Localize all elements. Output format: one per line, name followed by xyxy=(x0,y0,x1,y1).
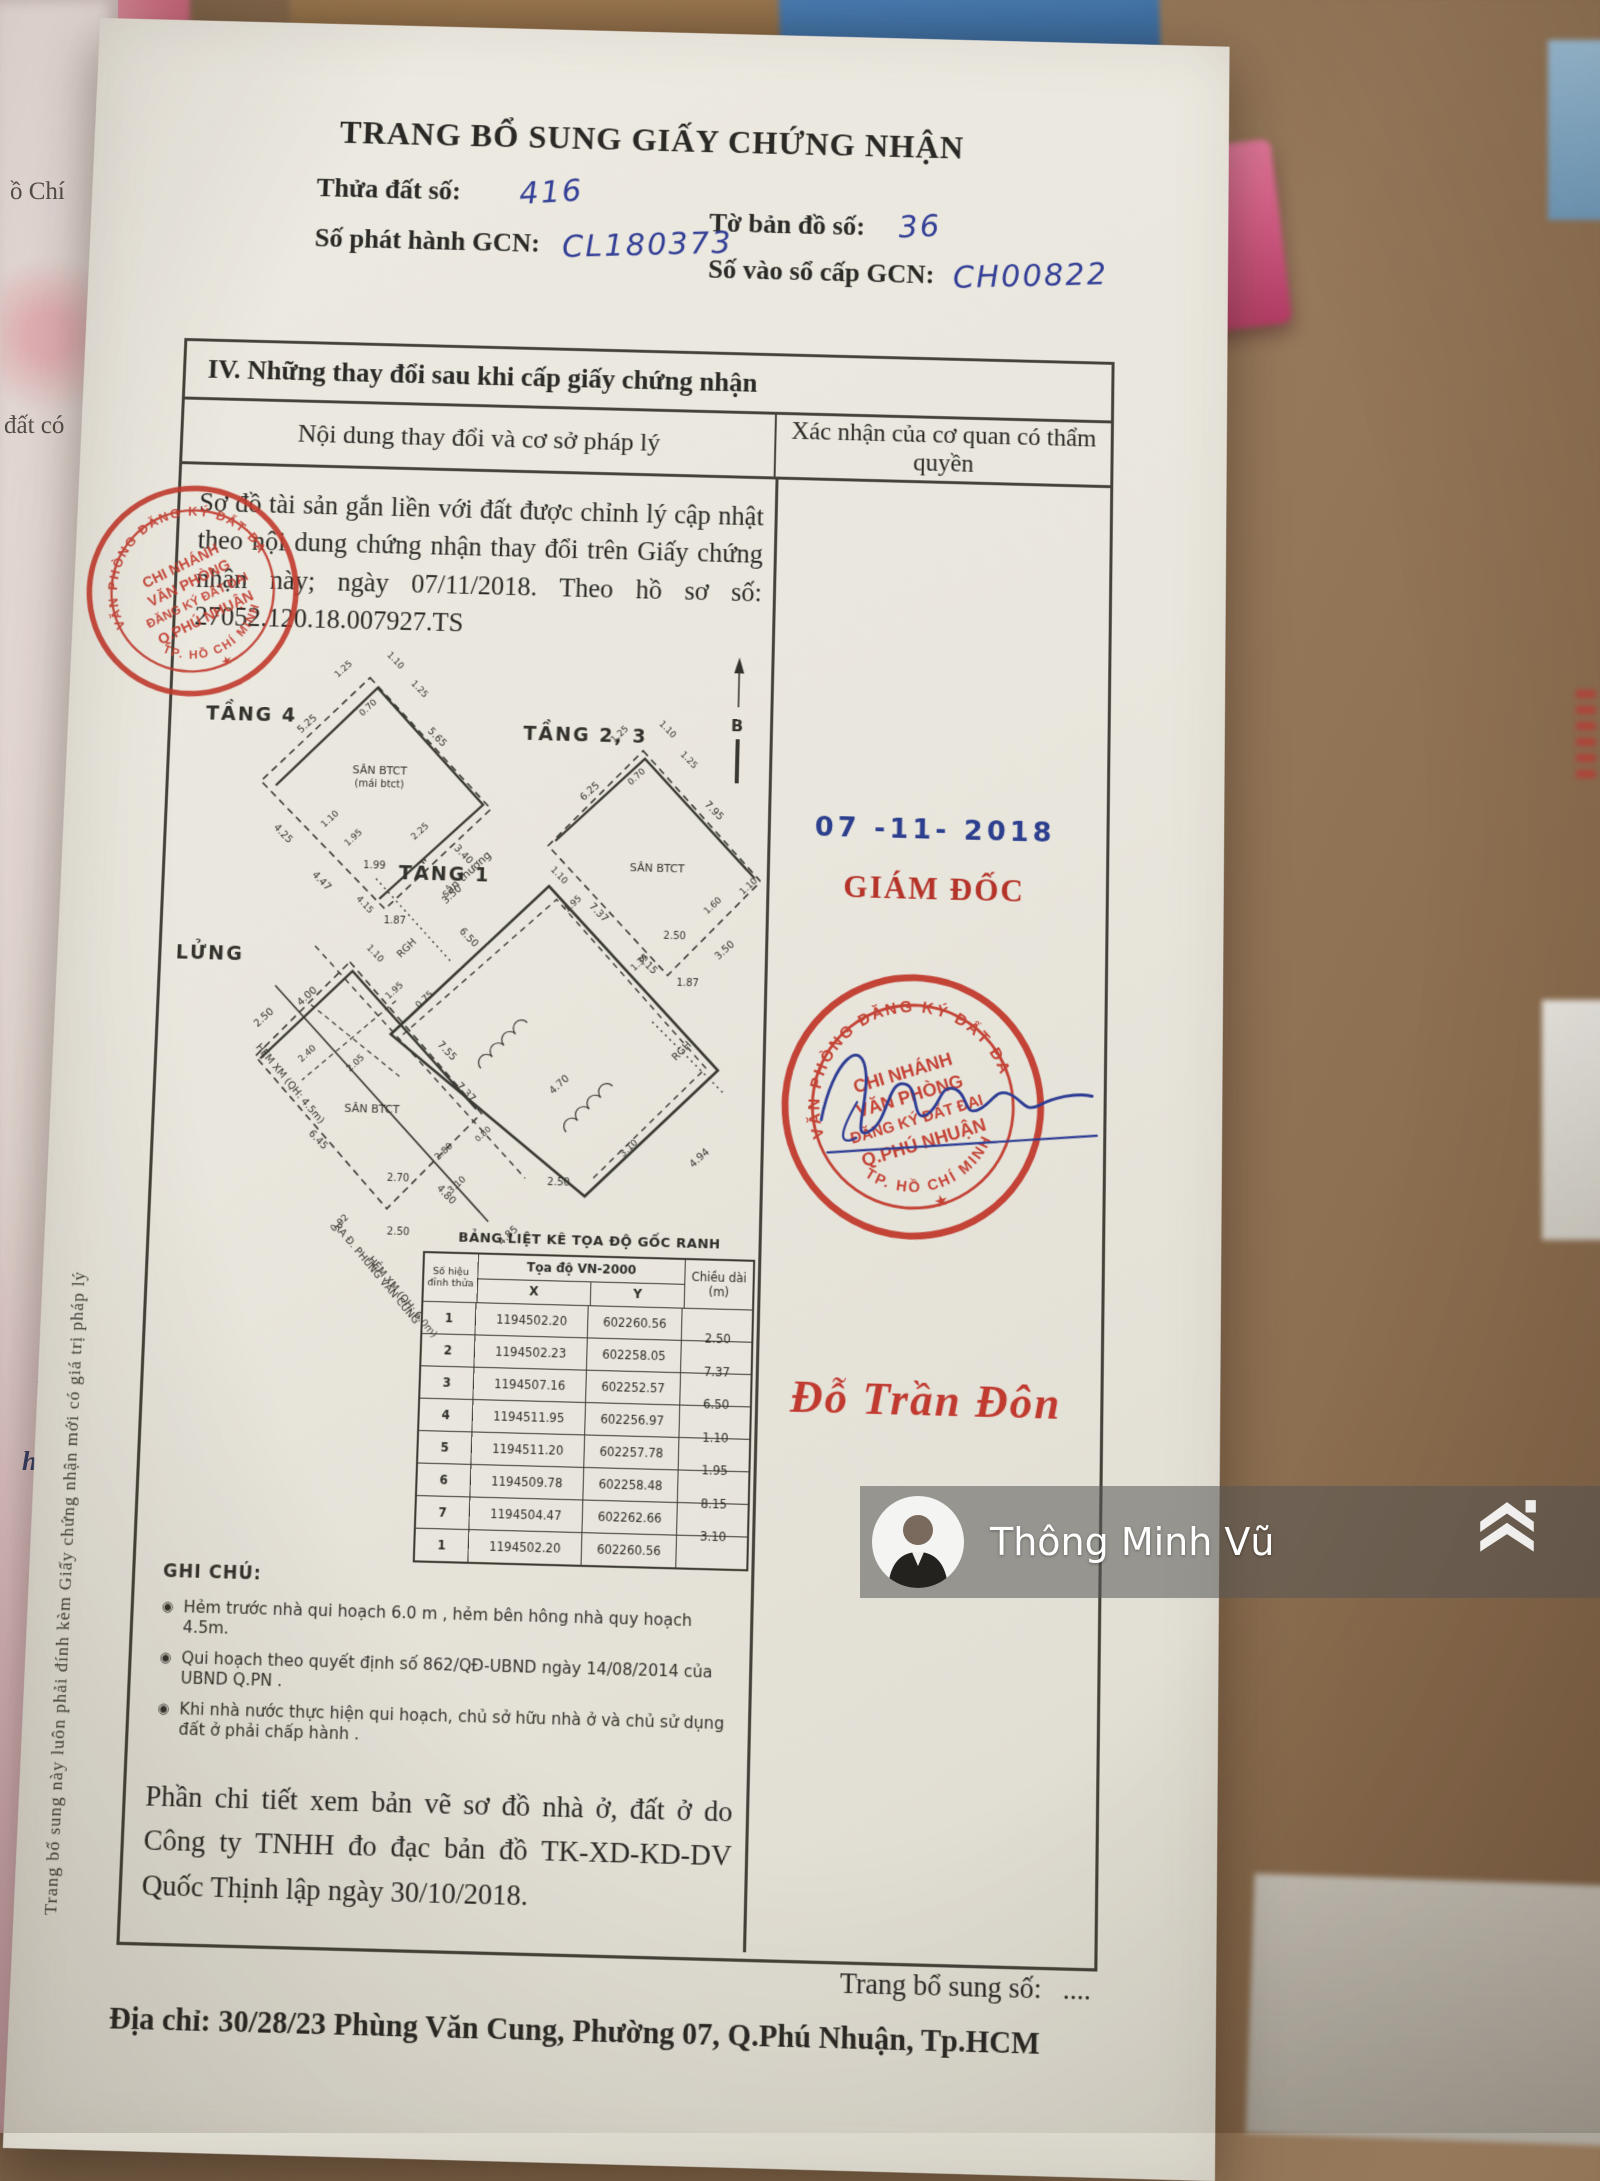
diagram-text: 1.10 xyxy=(657,719,679,741)
diagram-text: HẺM XM (QH: 4.5m) xyxy=(253,1040,329,1127)
diagram-text: 0.70 xyxy=(358,697,380,718)
diagram-text: B xyxy=(731,716,746,736)
parcel-number-value: 416 xyxy=(518,173,584,211)
length-value: 2.50 xyxy=(684,1331,752,1347)
desk-red-text xyxy=(1576,690,1596,780)
diagram-text: 2.50 xyxy=(663,931,686,943)
coordinates-table-header: Số hiệu đỉnh thửa Tọa độ VN-2000 X Y Chi… xyxy=(423,1253,753,1310)
coords-cell: 4 xyxy=(419,1399,473,1432)
diagram-text: 1.99 xyxy=(363,860,386,872)
diagram-text: 1.25 xyxy=(408,679,429,700)
coords-cell: 602257.78 xyxy=(584,1435,679,1469)
coords-cell: 602260.56 xyxy=(582,1533,677,1567)
coords-cell: 5 xyxy=(418,1431,472,1464)
length-value: 8.15 xyxy=(680,1495,748,1512)
note-item: ◉ Qui hoạch theo quyết định số 862/QĐ-UB… xyxy=(158,1648,738,1705)
diagram-text: 4.15 xyxy=(354,894,375,916)
property-address: Địa chỉ: 30/28/23 Phùng Văn Cung, Phường… xyxy=(108,2001,1091,2064)
note-text-1: Hẻm trước nhà qui hoạch 6.0 m , hẻm bên … xyxy=(182,1597,739,1653)
coords-cell: 1194502.23 xyxy=(474,1335,587,1369)
header-length-2: (m) xyxy=(685,1284,753,1301)
note-item: ◉ Hẻm trước nhà qui hoạch 6.0 m , hẻm bê… xyxy=(160,1597,739,1654)
diagram-text: 4.47 xyxy=(309,869,333,893)
signature xyxy=(804,989,1111,1207)
diagram-text: 1.10 xyxy=(548,865,570,887)
length-value: 1.95 xyxy=(681,1462,749,1479)
page-no-label: Trang bổ sung số: xyxy=(840,1967,1042,2005)
page-title: TRANG BỔ SUNG GIẤY CHỨNG NHẬN xyxy=(192,112,1111,171)
coords-cell: 7 xyxy=(416,1496,470,1529)
desk-blue-strip xyxy=(1548,40,1600,220)
diagram-text: 3.10 xyxy=(446,1174,468,1196)
diagram-text: 2.70 xyxy=(386,1172,409,1184)
watermark-name: Thông Minh Vũ xyxy=(990,1520,1275,1564)
coords-cell: 602260.56 xyxy=(588,1306,683,1340)
field-parcel: Thửa đất số: 416 xyxy=(316,169,583,211)
coords-cell: 602252.57 xyxy=(586,1371,681,1405)
gcn-book-value: CH00822 xyxy=(952,257,1109,296)
gcn-book-label: Số vào sổ cấp GCN: xyxy=(708,254,935,289)
column-header-confirmation: Xác nhận của cơ quan có thẩm quyền xyxy=(776,415,1111,485)
diagram-text: 6.45 xyxy=(306,1128,330,1152)
gcn-issue-value: CL180373 xyxy=(561,225,733,264)
diagram-text: 2.40 xyxy=(297,1043,319,1065)
bullet-icon: ◉ xyxy=(160,1597,173,1638)
gcn-issue-label: Số phát hành GCN: xyxy=(314,223,540,258)
diagram-text: 7.37 xyxy=(454,1081,478,1105)
note-text-2: Qui hoạch theo quyết định số 862/QĐ-UBND… xyxy=(180,1648,738,1704)
closing-paragraph: Phần chi tiết xem bản vẽ sơ đồ nhà ở, đấ… xyxy=(141,1773,733,1922)
note-text-3: Khi nhà nước thực hiện qui hoạch, chủ sở… xyxy=(178,1699,737,1755)
coords-cell: 602258.48 xyxy=(583,1468,678,1502)
coords-cell: 602258.05 xyxy=(587,1338,682,1372)
length-value: 3.10 xyxy=(679,1528,747,1545)
certificate-supplement-page: TRANG BỔ SUNG GIẤY CHỨNG NHẬN Thửa đất s… xyxy=(3,18,1230,2181)
coords-cell: 6 xyxy=(417,1464,471,1497)
diagram-text: 4.94 xyxy=(688,1146,712,1170)
coords-cell: 1194511.95 xyxy=(472,1400,586,1434)
diagram-text: 1.87 xyxy=(676,978,699,990)
diagram-text: 7.95 xyxy=(702,799,726,823)
parcel-number-label: Thửa đất số: xyxy=(316,173,461,206)
coords-cell: 1194507.16 xyxy=(473,1368,586,1402)
coords-cell: 1194502.20 xyxy=(475,1303,588,1337)
diagram-text: 1.25 xyxy=(678,750,699,771)
coords-cell: 1194504.47 xyxy=(469,1497,583,1532)
length-value: 7.37 xyxy=(683,1363,751,1379)
diagram-text: 1.95 xyxy=(343,828,365,849)
header-point-2: đỉnh thửa xyxy=(424,1277,477,1290)
diagram-text: 4.25 xyxy=(271,822,295,846)
coords-cell: 2 xyxy=(421,1334,475,1367)
diagram-text: LỬNG xyxy=(175,938,244,965)
diagram-text: TẦNG 4 xyxy=(206,698,298,727)
avatar xyxy=(872,1496,964,1588)
diagram-text: 1.95 xyxy=(384,980,406,1001)
length-value: 6.50 xyxy=(682,1396,750,1412)
diagram-text: 1.25 xyxy=(333,659,355,680)
bullet-icon: ◉ xyxy=(156,1698,169,1740)
diagram-text: 2.05 xyxy=(345,1053,367,1074)
header-x: X xyxy=(478,1279,592,1305)
coords-cell: 1 xyxy=(415,1529,470,1562)
coords-lengths: 2.507.376.501.101.958.153.10 xyxy=(679,1308,753,1561)
desk-paper-bottom-right xyxy=(1246,1873,1600,2146)
coords-cell: 602262.66 xyxy=(582,1501,677,1535)
diagram-text: 6.50 xyxy=(457,926,481,950)
diagram-text: 1.60 xyxy=(702,895,724,916)
diagram-text: 0.75 xyxy=(414,989,436,1010)
watermark-logo-icon xyxy=(1472,1496,1542,1566)
diagram-text: 5.25 xyxy=(296,713,320,736)
note-item: ◉ Khi nhà nước thực hiện qui hoạch, chủ … xyxy=(156,1698,737,1755)
diagram-text: SÂN BTCT xyxy=(630,861,685,876)
coords-cell: 3 xyxy=(420,1366,474,1399)
diagram-text: 1.87 xyxy=(383,915,406,927)
coords-cell: 1 xyxy=(422,1302,476,1335)
diagram-text: 4.70 xyxy=(547,1073,571,1097)
length-value: 1.10 xyxy=(681,1429,749,1445)
diagram-text: 2.50 xyxy=(547,1177,570,1189)
diagram-text: 0.80 xyxy=(473,1125,493,1144)
diagram-text: SÂN BTCT xyxy=(352,763,407,778)
signer-name: Đỗ Trần Đôn xyxy=(743,1369,1107,1432)
map-sheet-value: 36 xyxy=(898,209,943,246)
coords-cell: 1194511.20 xyxy=(471,1432,585,1466)
watermark-bar: Thông Minh Vũ xyxy=(860,1486,1600,1598)
diagram-text: (mái btct) xyxy=(354,777,404,790)
diagram-text: 2.50 xyxy=(252,1006,276,1030)
diagram-text: 7.37 xyxy=(586,901,610,925)
bullet-icon: ◉ xyxy=(158,1648,171,1690)
diagram-text: 2.80 xyxy=(433,1141,455,1163)
diagram-text: 0.70 xyxy=(626,766,648,787)
page-no-value: .... xyxy=(1063,1973,1092,2006)
diagram-text: 1.10 xyxy=(320,809,342,830)
coords-cell: 1194502.20 xyxy=(468,1530,582,1565)
diagram-text: 1.10 xyxy=(738,876,760,897)
field-gcn-issue: Số phát hành GCN: CL180373 xyxy=(314,219,733,265)
diagram-text: 1.10 xyxy=(384,650,405,672)
coordinates-table: BẢNG LIỆT KÊ TỌA ĐỘ GỐC RANH Số hiệu đỉn… xyxy=(413,1229,756,1571)
behind-text-1: ồ Chí xyxy=(10,178,65,206)
header-y: Y xyxy=(591,1282,684,1307)
field-map-sheet: Tờ bản đồ số: 36 xyxy=(709,204,942,245)
diagram-text: 7.55 xyxy=(435,1039,459,1063)
desk-tissue-box xyxy=(1542,1000,1600,1240)
field-gcn-book: Số vào sổ cấp GCN: CH00822 xyxy=(708,251,1108,296)
behind-text-2: đất có xyxy=(4,412,64,440)
diagram-text: 2.50 xyxy=(387,1226,410,1238)
diagram-text: RGH xyxy=(395,937,419,961)
coords-cell: 602256.97 xyxy=(585,1403,680,1437)
notes-block: GHI CHÚ: ◉ Hẻm trước nhà qui hoạch 6.0 m… xyxy=(156,1561,740,1765)
diagram-text: 2.25 xyxy=(410,821,432,842)
diagram-text: 1.10 xyxy=(364,943,386,965)
diagram-text: 3.50 xyxy=(713,939,737,963)
diagram-text: SÂN BTCT xyxy=(344,1101,400,1116)
coords-cell: 1194509.78 xyxy=(470,1465,584,1500)
